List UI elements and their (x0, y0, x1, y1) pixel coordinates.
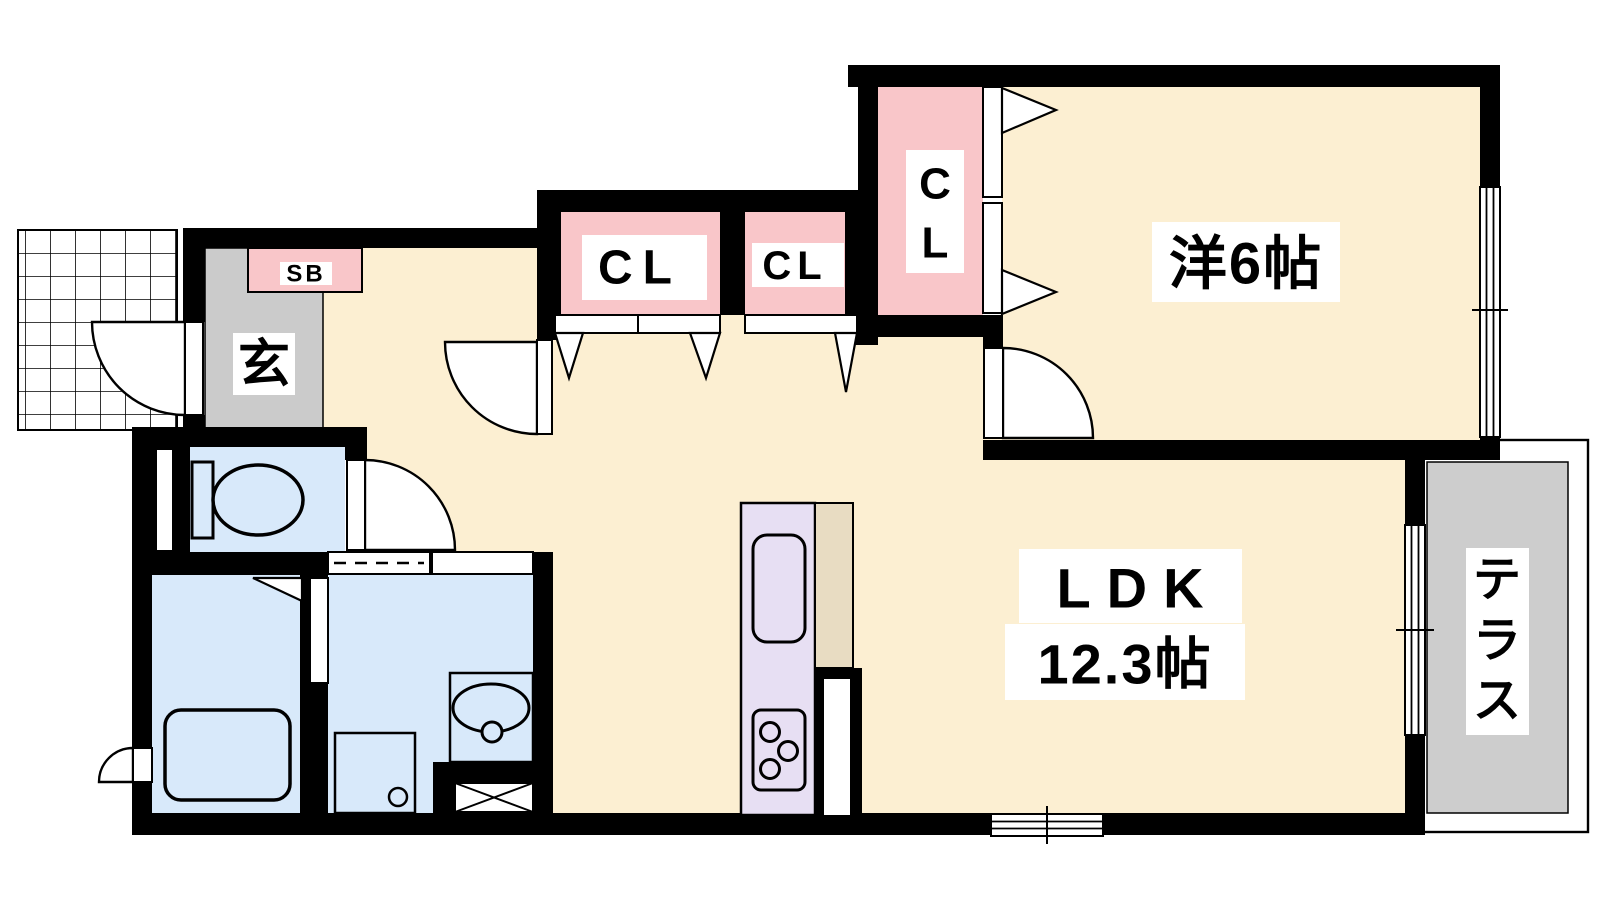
wall-closet-top (537, 190, 857, 212)
wall-closet-divider (720, 212, 745, 315)
washbasin (450, 673, 533, 762)
toilet-window (157, 450, 172, 550)
toilet-fixture (192, 462, 303, 538)
label-closet-hall-large: CL (582, 235, 707, 300)
wall-under-closet (857, 315, 1002, 337)
wall-ldk-right-upper (1405, 460, 1425, 525)
kitchen-sink (753, 535, 805, 642)
washroom-sliding-door (328, 552, 533, 574)
label-western-room: 洋6帖 (1152, 222, 1340, 302)
label-terrace: テ ラ ス (1466, 548, 1529, 735)
stove (753, 710, 805, 790)
wall-bottom (132, 813, 1425, 835)
terrace-label-char1: テ (1473, 554, 1521, 607)
closet-bedroom-label-char2: L (922, 219, 949, 268)
wall-top-left (183, 228, 557, 248)
label-closet-hall-small: CL (752, 243, 844, 288)
wall-entrance-bottom (132, 427, 367, 447)
wall-entrance-left-lower (183, 415, 205, 433)
western-room-label: 洋6帖 (1169, 232, 1323, 297)
closet-hall-large-label: CL (598, 242, 682, 295)
shoe-box-label: SB (286, 261, 325, 288)
closet-bedroom-label-char1: C (919, 160, 951, 209)
label-ldk: LDK 12.3帖 (1005, 549, 1245, 700)
wall-toilet-right (345, 427, 367, 460)
bathroom-vent-door (99, 748, 152, 782)
terrace-label-char3: ス (1473, 675, 1521, 728)
wall-western-room-bottom (983, 440, 1500, 460)
ldk-label-line2: 12.3帖 (1038, 633, 1213, 696)
washing-machine-pan (335, 733, 415, 813)
counter-top (815, 503, 853, 668)
label-shoe-box: SB (280, 261, 332, 288)
kitchen-opening (824, 679, 850, 815)
wall-toilet-bottom (132, 552, 328, 575)
label-entrance: 玄 (233, 333, 295, 395)
ldk-label-line1: LDK (1056, 557, 1219, 620)
floor-plan: 洋6帖 LDK 12.3帖 テ ラ ス 玄 SB CL CL (0, 0, 1600, 900)
pipe-space-box (455, 783, 533, 812)
label-closet-bedroom: C L (906, 150, 964, 273)
entrance-label: 玄 (238, 336, 290, 394)
bathtub (165, 710, 290, 800)
wall-right-upper (1480, 85, 1500, 187)
wall-top (848, 65, 1500, 87)
floor-plan-page: 洋6帖 LDK 12.3帖 テ ラ ス 玄 SB CL CL (0, 0, 1600, 900)
wall-closet-bedroom-left (858, 65, 878, 345)
closet-hall-small-label: CL (762, 244, 827, 288)
ldk-floor (553, 437, 1405, 815)
terrace-label-char2: ラ (1473, 615, 1521, 668)
